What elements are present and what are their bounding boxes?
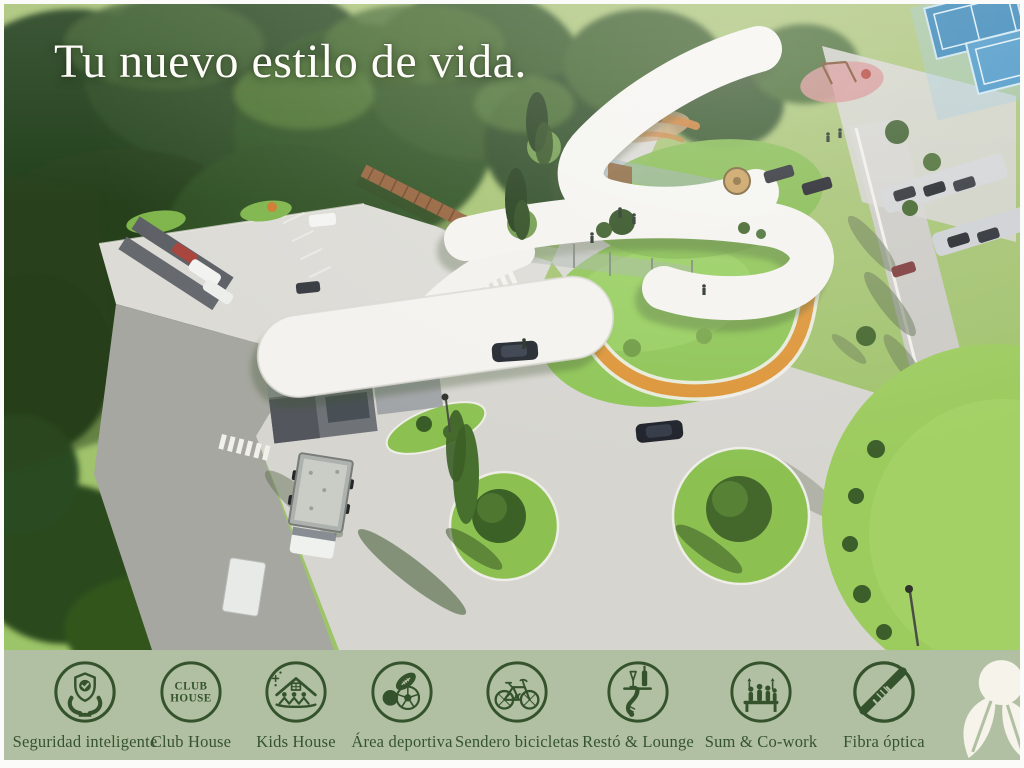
bottom-margin — [0, 760, 1024, 768]
headline: Tu nuevo estilo de vida. — [54, 34, 527, 89]
marketing-slide: Tu nuevo estilo de vida. Seguridad intel… — [0, 0, 1024, 768]
sports-balls-icon — [369, 659, 435, 725]
amenities-bar: Seguridad inteligente CLUB HOUSE Club Ho… — [4, 650, 1020, 760]
plant-leaf-logo — [938, 656, 1020, 758]
amenity-label: Fibra óptica — [843, 732, 925, 752]
fiber-optic-cable-icon — [851, 659, 917, 725]
bicycle-icon — [484, 659, 550, 725]
aerial-render: Tu nuevo estilo de vida. — [4, 4, 1020, 650]
svg-text:HOUSE: HOUSE — [170, 693, 211, 705]
svg-text:CLUB: CLUB — [175, 681, 208, 693]
waiter-tray-icon — [605, 659, 671, 725]
aerial-render-illustration — [4, 4, 1020, 650]
cowork-people-icon — [728, 659, 794, 725]
